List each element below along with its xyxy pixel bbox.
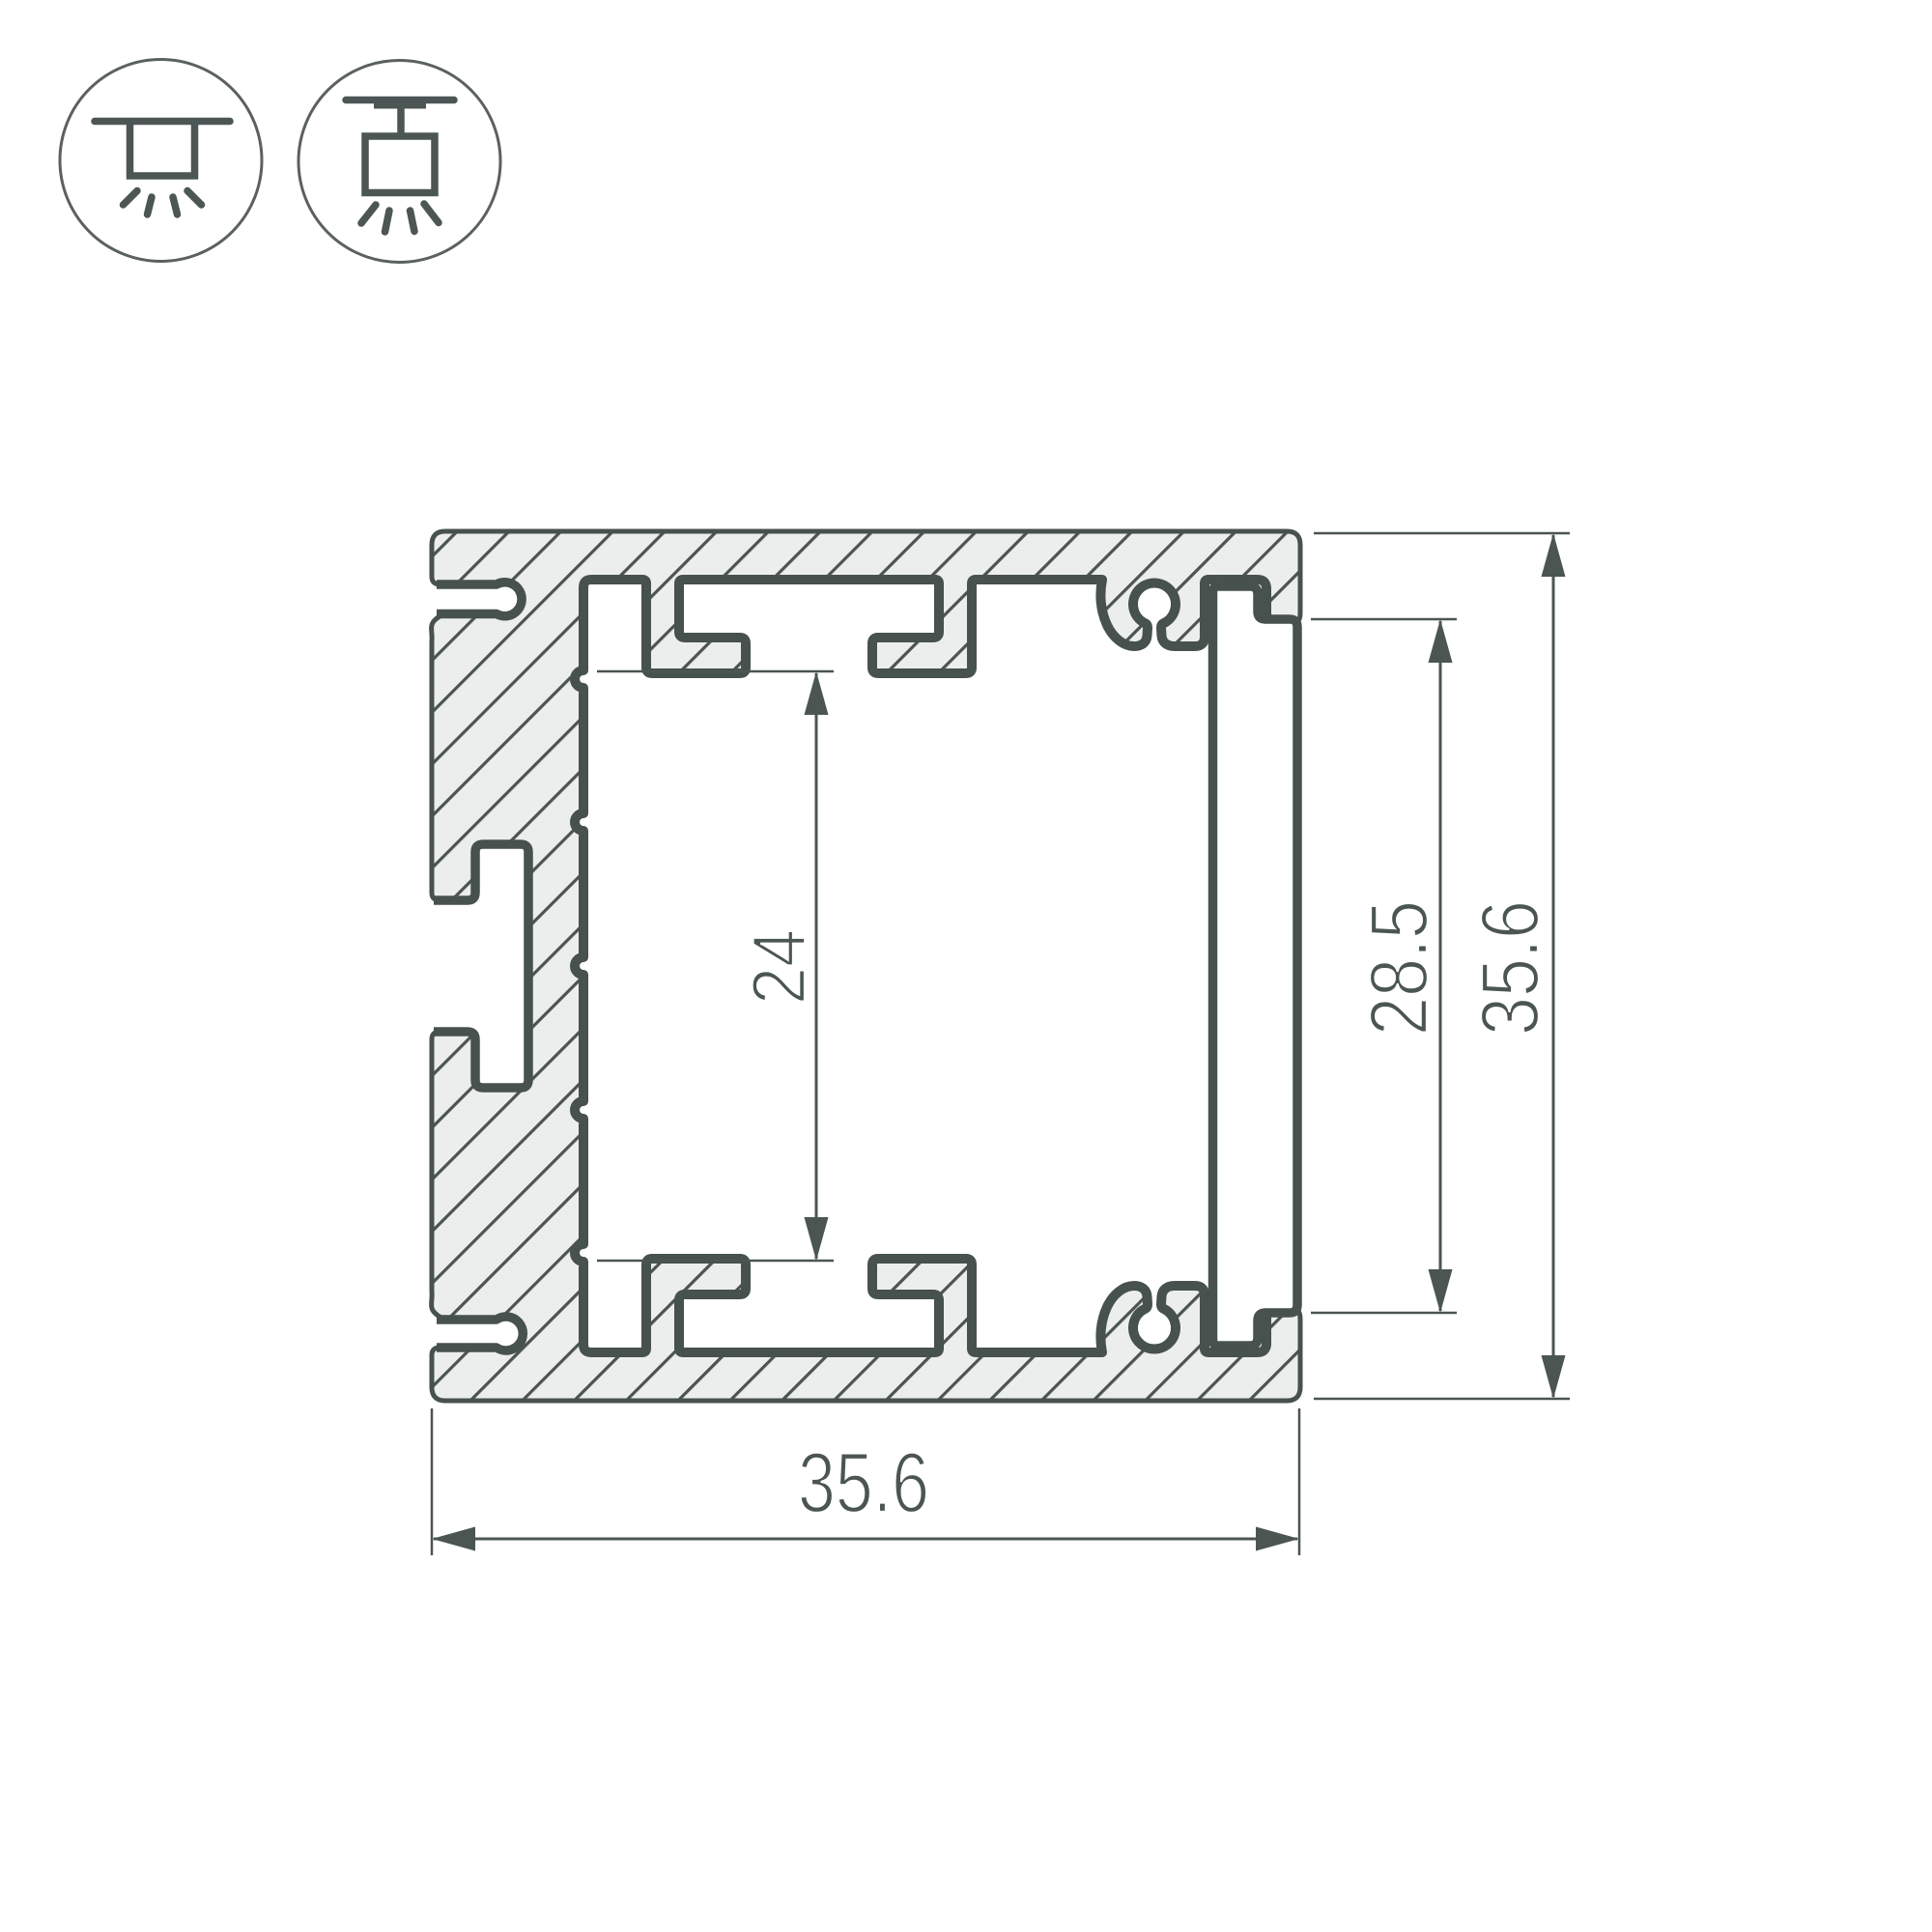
svg-text:28.5: 28.5	[1353, 900, 1444, 1036]
svg-text:24: 24	[736, 929, 821, 1005]
svg-text:35.6: 35.6	[798, 1435, 929, 1530]
svg-text:35.6: 35.6	[1464, 900, 1555, 1036]
